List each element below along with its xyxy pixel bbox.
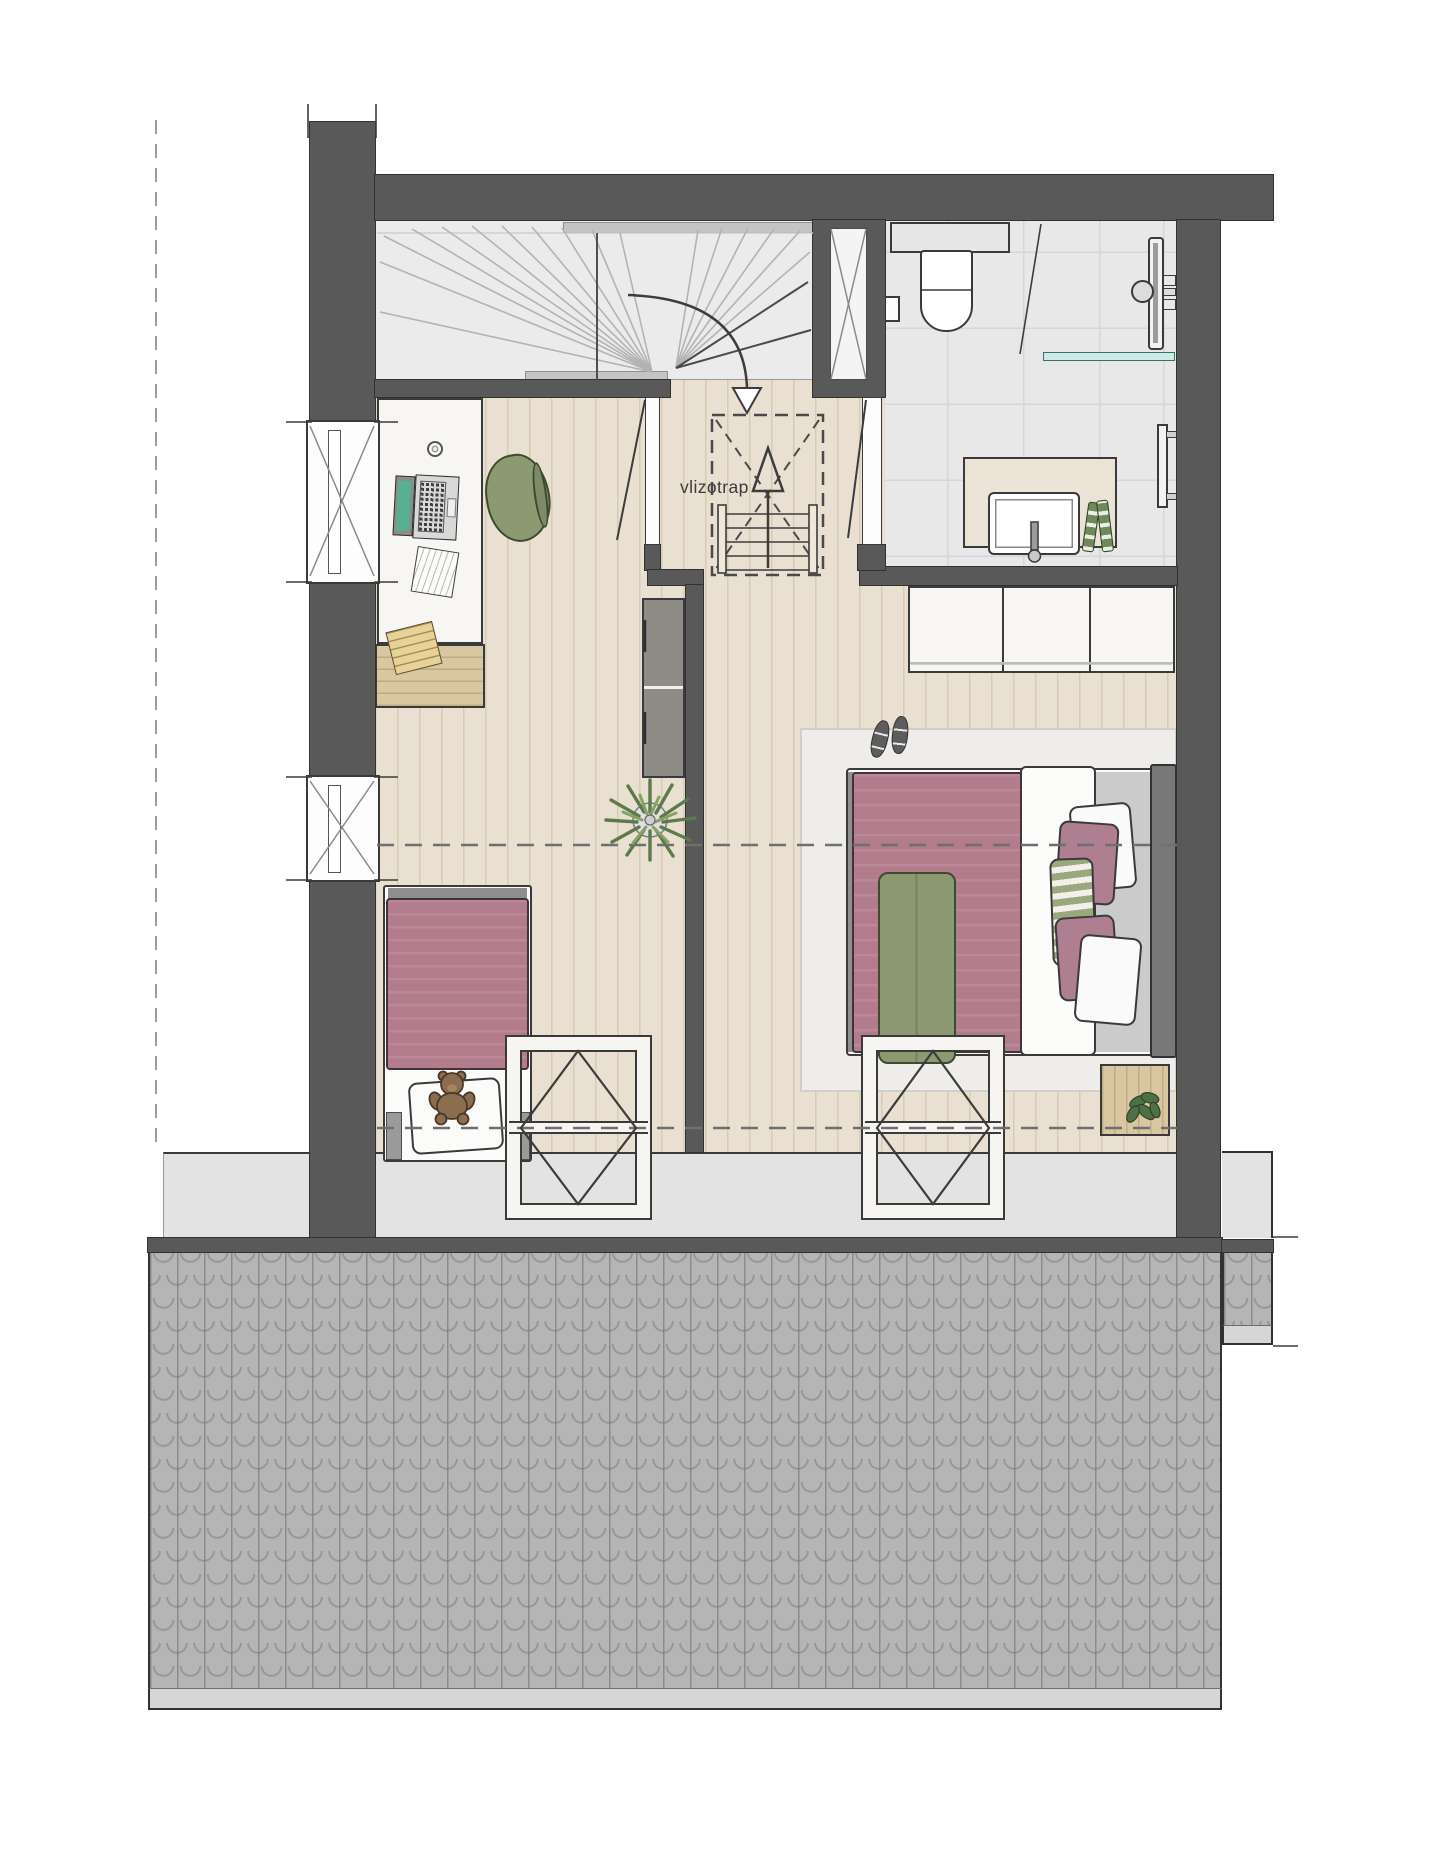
right-exterior-wall xyxy=(1177,220,1220,1238)
laptop-screen-display xyxy=(396,480,412,531)
wardrobe xyxy=(908,586,1175,673)
towel-bar-bracket-bottom xyxy=(1166,493,1177,500)
dresser-divider xyxy=(644,686,683,689)
bathroom-south-wall xyxy=(860,567,1177,585)
wardrobe-door-divider xyxy=(1002,588,1004,671)
headboard xyxy=(1150,764,1177,1058)
laptop-touchpad xyxy=(447,498,457,517)
hallway-stub-wall xyxy=(648,570,703,585)
single-bed-rail xyxy=(386,1112,402,1160)
skylight-master-bedroom-crossbar xyxy=(865,1121,1001,1134)
toilet-cistern xyxy=(890,222,1010,253)
shower-head xyxy=(1131,280,1154,303)
duct-shaft-interior xyxy=(830,228,867,380)
left-exterior-wall xyxy=(310,122,375,1238)
window-child-room-pane xyxy=(328,785,341,873)
skylight-child-room-crossbar xyxy=(509,1121,648,1134)
wardrobe-door-divider xyxy=(1089,588,1091,671)
eaves-bump-right xyxy=(1222,1151,1273,1238)
bed-throw-blanket xyxy=(878,872,956,1064)
vlizotrap-label: vlizotrap xyxy=(680,477,749,498)
shower-glass-shelf xyxy=(1043,352,1175,361)
window-study-pane xyxy=(328,430,341,574)
stair-tread-edge-top xyxy=(563,222,813,233)
laptop-keys xyxy=(418,481,447,533)
shower-mixer-handle-top xyxy=(1163,275,1176,286)
door-post xyxy=(645,545,660,570)
roof-bump-right xyxy=(1222,1252,1273,1325)
laptop xyxy=(392,472,461,541)
dresser xyxy=(642,598,685,778)
knee-wall xyxy=(148,1238,1222,1252)
toilet-bowl xyxy=(920,250,973,332)
roof xyxy=(148,1252,1222,1688)
wardrobe-front-edge xyxy=(910,662,1173,664)
roof-bump-gutter xyxy=(1222,1325,1273,1345)
door-post xyxy=(858,545,885,570)
knee-wall-bump xyxy=(1222,1240,1273,1252)
toilet-paper-holder xyxy=(883,296,900,322)
window-study xyxy=(306,420,380,584)
vanity-sink xyxy=(988,492,1080,555)
desk-cup xyxy=(427,441,443,457)
desk-book xyxy=(411,546,460,598)
bedside-table xyxy=(1100,1064,1170,1136)
window-child-room xyxy=(306,775,380,882)
roof-gutter xyxy=(148,1688,1222,1710)
shower-mixer-handle-bottom xyxy=(1163,299,1176,310)
top-exterior-wall xyxy=(375,175,1273,220)
floor-plan: vlizotrap xyxy=(0,0,1440,1870)
stairwell-south-wall xyxy=(375,380,670,397)
towel-bar-bracket-top xyxy=(1166,431,1177,438)
single-bed-pillow xyxy=(408,1077,505,1155)
pillow-white xyxy=(1073,933,1142,1026)
stairwell-floor xyxy=(375,220,813,380)
door-leaf-bathroom xyxy=(862,397,882,545)
door-leaf-child-room xyxy=(645,397,660,545)
bedroom-divider-wall xyxy=(686,585,703,1152)
